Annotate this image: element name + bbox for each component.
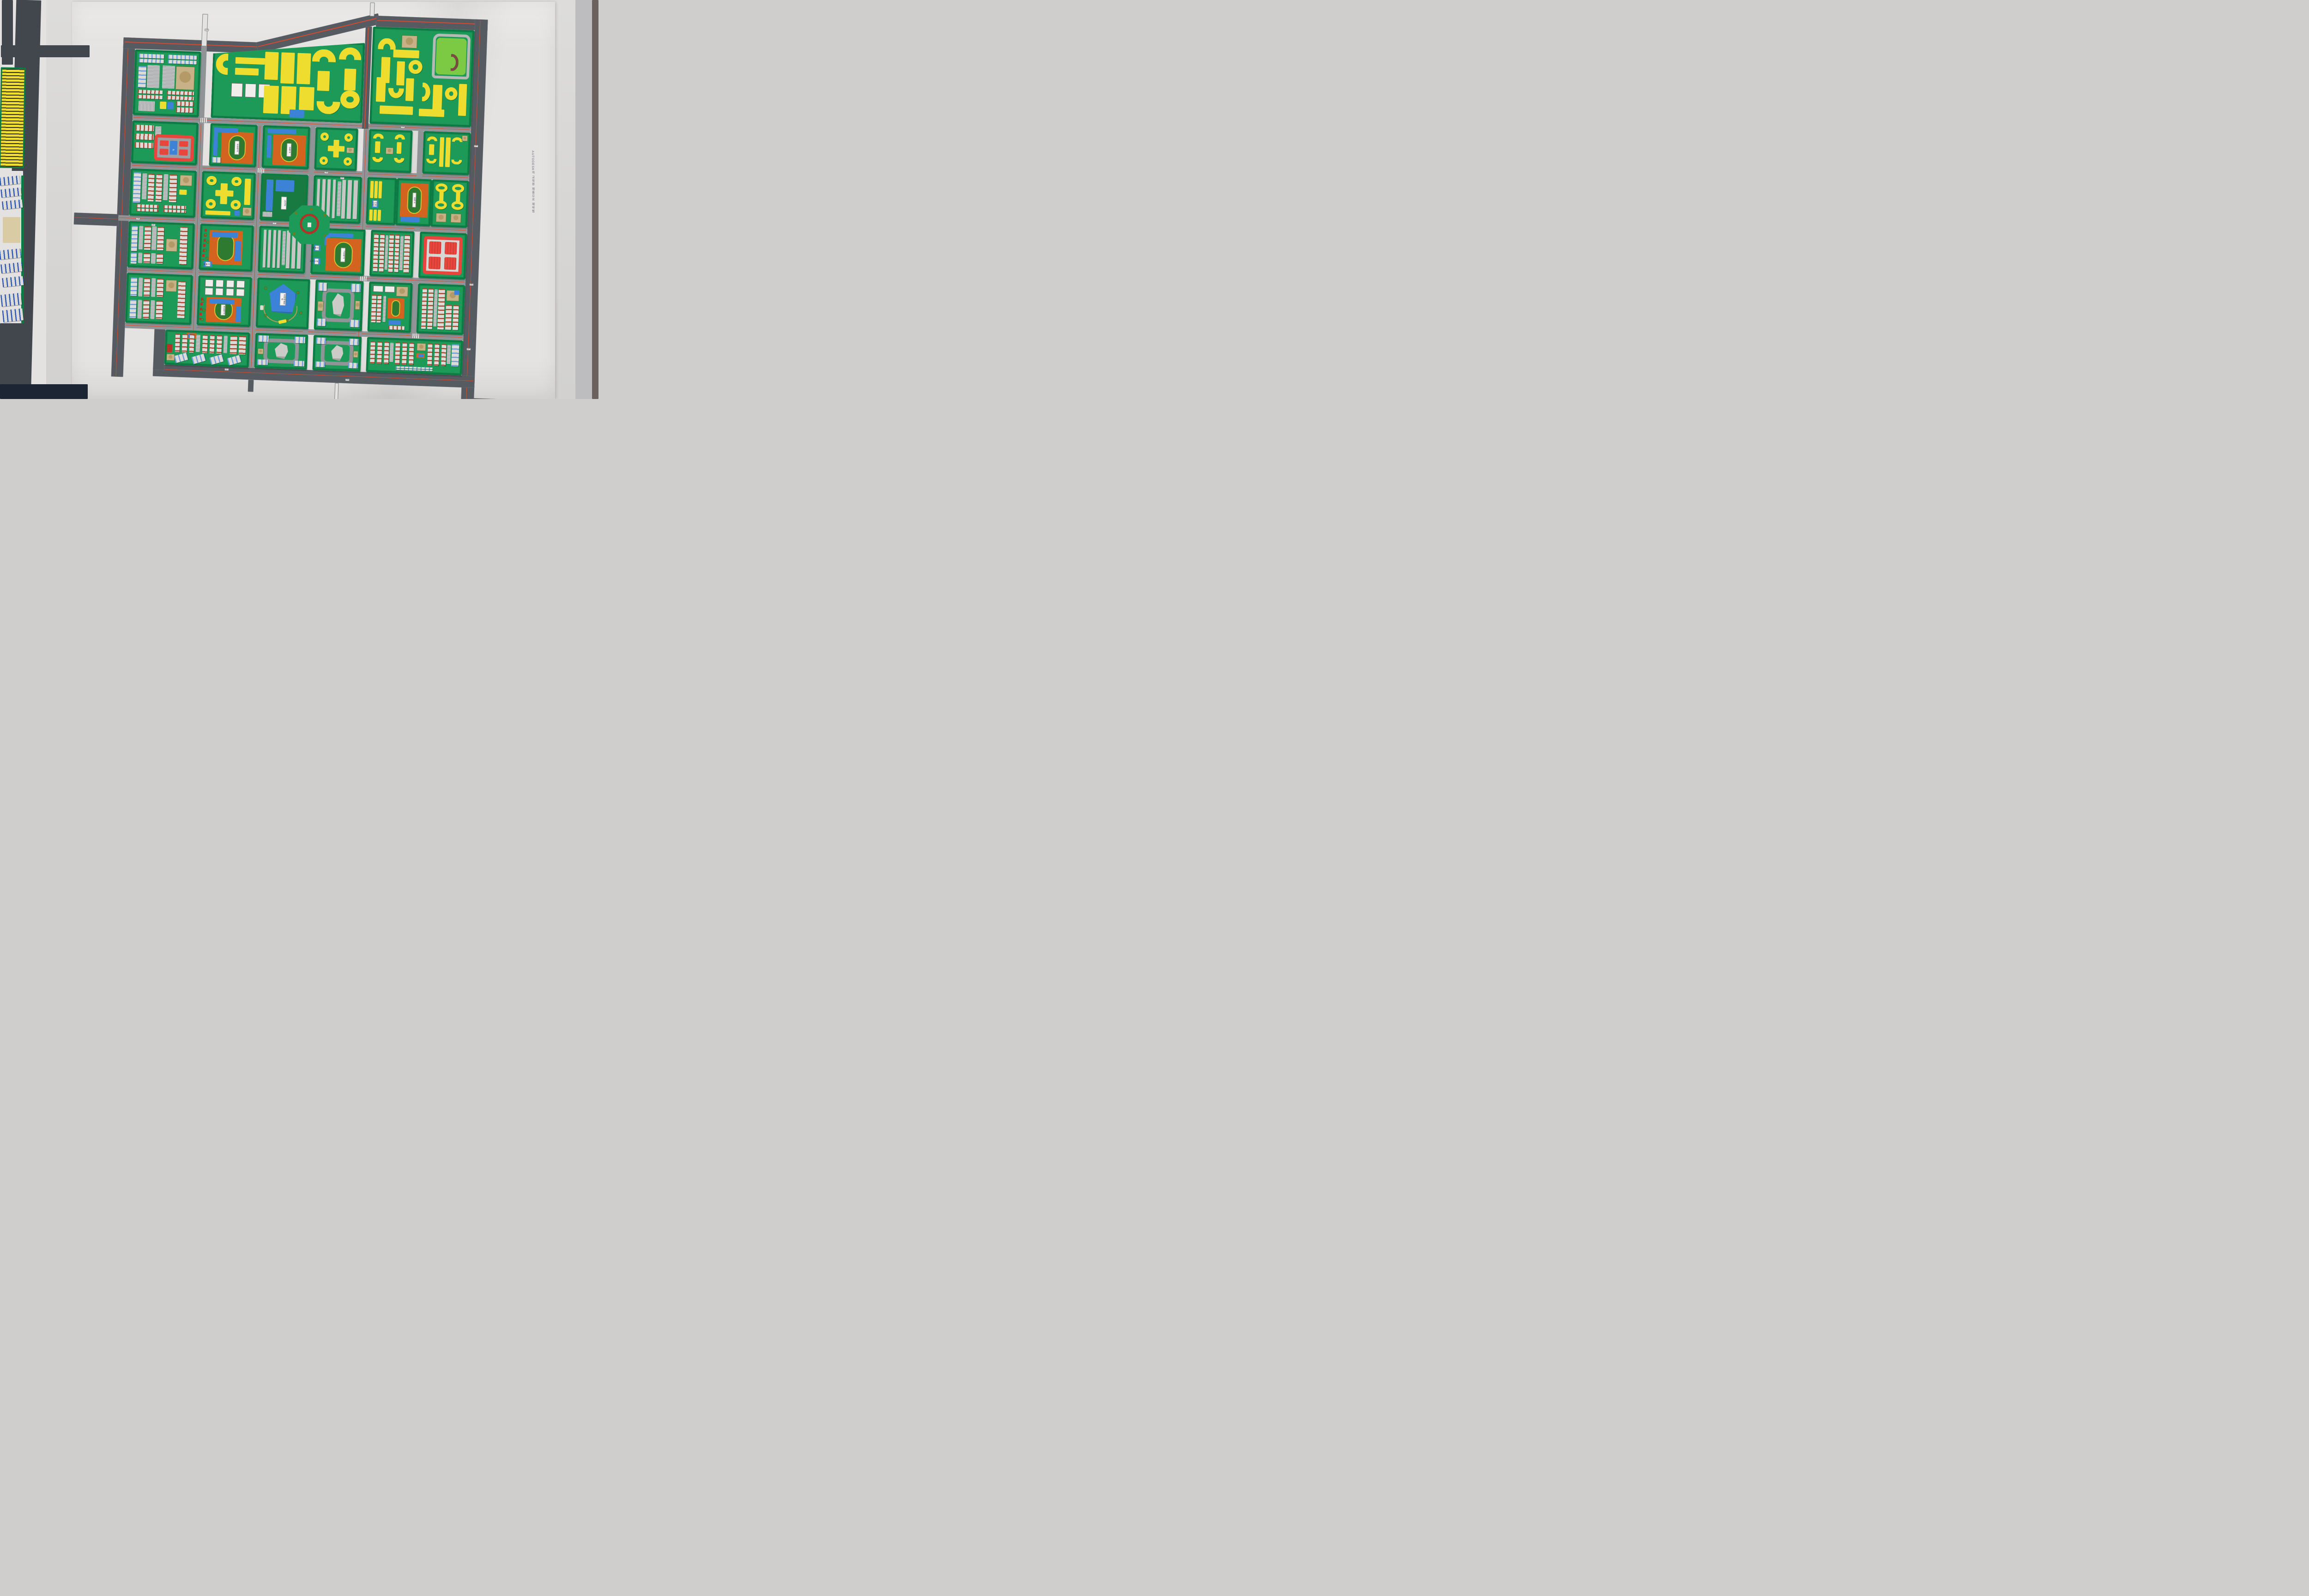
- right-board-edge: [592, 0, 598, 399]
- right-background: [0, 0, 598, 399]
- photo-architectural-model-scene: AUTODESK의 교육용 제품으로 제작됨 P초등학교중학교도서관커뮤니티중학…: [0, 0, 598, 399]
